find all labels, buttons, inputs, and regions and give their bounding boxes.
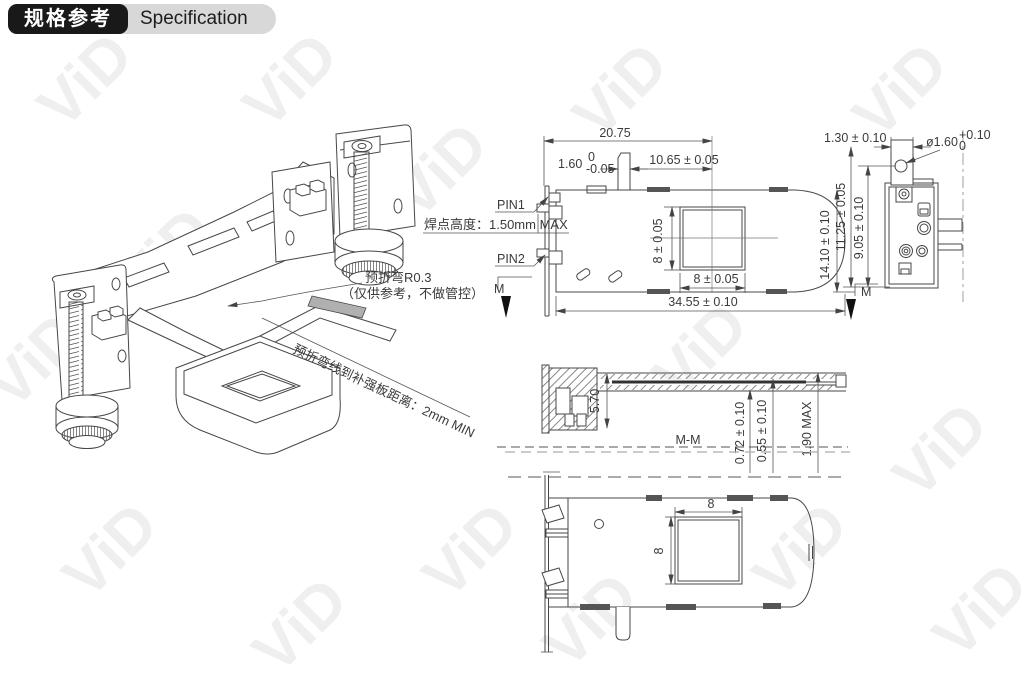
- section-label: M-M: [676, 433, 701, 447]
- prebend-ref-note: （仅供参考，不做管控）: [341, 286, 484, 301]
- pin1-label: PIN1: [497, 198, 525, 212]
- dim-10-65: 10.65 ± 0.05: [649, 153, 718, 167]
- section-view: 5.70 0.72 ± 0.10 0.55 ± 0.10 1.90 MAX M-…: [497, 365, 850, 477]
- dim-20-75: 20.75: [599, 126, 630, 140]
- section-bar-hatch: [600, 374, 836, 379]
- section-arrow-left: [501, 296, 511, 318]
- dim-1-90: 1.90 MAX: [800, 401, 814, 457]
- dim-9-05: 9.05 ± 0.10: [852, 197, 866, 260]
- bottom-edge-tab: [770, 495, 788, 501]
- front-window-inner: [683, 210, 742, 267]
- section-flex-tape: [612, 381, 806, 384]
- connector-pin: [98, 310, 111, 321]
- watermark-text: ViD: [50, 490, 171, 611]
- watermark-text: ViD: [240, 565, 361, 686]
- prebend-r-note: 预折弯R0.3: [365, 270, 431, 285]
- side-ring-inner: [919, 248, 925, 254]
- section-mark-left: M: [494, 282, 504, 296]
- lead-screw-left: [69, 302, 83, 404]
- side-component-inner: [920, 209, 928, 214]
- bottom-dim-w: 8: [708, 497, 715, 511]
- side-ring-inner: [902, 247, 910, 255]
- section-header: 规格参考 Specification: [8, 4, 276, 34]
- bottom-window-outer: [675, 517, 742, 584]
- dim-14-10: 14.10 ± 0.10: [818, 210, 832, 279]
- front-slot: [576, 268, 591, 282]
- connector-pin: [110, 306, 123, 317]
- bottom-edge-tab: [580, 604, 610, 610]
- section-end-cap: [836, 375, 846, 387]
- bottom-edge-tab: [646, 495, 662, 501]
- dim-0-55: 0.55 ± 0.10: [755, 400, 769, 463]
- section-left-wall: [542, 365, 549, 433]
- solder-height-note: 焊点高度：1.50mm MAX: [424, 217, 568, 232]
- front-window-outer: [680, 207, 745, 270]
- side-top-bar: [913, 179, 933, 185]
- spec-sheet: 规格参考 Specification ViD ViD ViD: [0, 0, 1025, 693]
- bottom-dim-h: 8: [652, 547, 666, 554]
- connector-pin: [310, 180, 324, 192]
- side-ring: [918, 222, 931, 235]
- section-cavity: [565, 414, 574, 426]
- side-ring: [900, 245, 913, 258]
- bottom-view-dimensions: 8 8: [652, 497, 742, 584]
- motor-right-top: [335, 229, 403, 253]
- dim-window-w: 8 ± 0.05: [693, 272, 738, 286]
- side-screw: [899, 189, 909, 199]
- front-view-dimensions: 20.75 1.60 0 -0.05 10.65 ± 0.05 34.55 ± …: [544, 126, 845, 316]
- header-badge-en: Specification: [114, 4, 276, 34]
- side-ring-inner: [920, 224, 928, 232]
- section-bar-hatch: [600, 385, 836, 390]
- section-cavity: [577, 414, 586, 426]
- watermark-text: ViD: [230, 20, 351, 141]
- dim-1-30: 1.30 ± 0.10: [824, 131, 887, 145]
- side-screw-center: [902, 192, 906, 196]
- header-badge-cn: 规格参考: [8, 4, 128, 34]
- front-edge-tab: [647, 289, 670, 294]
- front-top-block: [549, 193, 560, 202]
- dim-34-55: 34.55 ± 0.10: [668, 295, 737, 309]
- motor-left-base: [69, 436, 105, 449]
- watermark-text: ViD: [25, 20, 146, 141]
- front-edge-tab: [769, 187, 788, 192]
- dim-11-25: 11.25 ± 0.05: [834, 183, 848, 252]
- side-ring-center: [904, 249, 908, 253]
- front-edge-tab: [647, 187, 670, 192]
- side-hole: [895, 160, 907, 172]
- flex-tail: [256, 306, 396, 348]
- front-pin1-lead: [537, 204, 549, 212]
- dim-5-70: 5.70: [588, 389, 602, 413]
- bottom-edge-tab: [727, 495, 753, 501]
- watermark-text: ViD: [410, 490, 531, 611]
- dim-0-72: 0.72 ± 0.10: [733, 402, 747, 465]
- dim-hole-tol-dn: 0: [959, 139, 966, 153]
- watermarks: ViD ViD ViD ViD ViD ViD ViD ViD ViD ViD …: [0, 20, 1025, 686]
- lead-screw-right: [354, 152, 369, 236]
- front-top-tab: [618, 153, 630, 190]
- dim-1-60: 1.60: [558, 157, 582, 171]
- bottom-hole: [595, 520, 604, 529]
- front-pin2-lead: [537, 249, 549, 257]
- watermark-text: ViD: [920, 550, 1025, 671]
- side-ring: [917, 246, 928, 257]
- side-right-bar: [938, 219, 962, 231]
- bottom-edge-tab: [666, 604, 696, 610]
- mount-hole: [352, 141, 372, 152]
- drawing-canvas: ViD ViD ViD ViD ViD ViD ViD ViD ViD ViD …: [0, 0, 1025, 693]
- mount-hole: [68, 290, 86, 300]
- watermark-text: ViD: [880, 390, 1001, 511]
- bottom-edge-tab: [763, 603, 781, 609]
- section-arrow-right: [846, 299, 856, 320]
- side-right-lines: [938, 244, 962, 250]
- side-view: 1.30 ± 0.10 ø1.60 +0.10 0 11.25 ± 0.05 9…: [824, 128, 991, 302]
- pin2-label: PIN2: [497, 252, 525, 266]
- section-cavity: [556, 388, 570, 414]
- side-component-inner: [901, 269, 909, 274]
- front-edge-tab: [766, 289, 787, 294]
- dim-window-h: 8 ± 0.05: [651, 218, 665, 263]
- front-block: [549, 251, 562, 264]
- dim-hole: ø1.60: [926, 135, 958, 149]
- motor-left-top: [56, 395, 118, 417]
- connector-pin: [296, 184, 310, 196]
- section-cavity: [572, 396, 588, 416]
- front-slot: [608, 270, 623, 284]
- bottom-window-inner: [678, 520, 739, 581]
- bottom-tab-extension: [616, 607, 630, 640]
- watermark-text: ViD: [740, 490, 861, 611]
